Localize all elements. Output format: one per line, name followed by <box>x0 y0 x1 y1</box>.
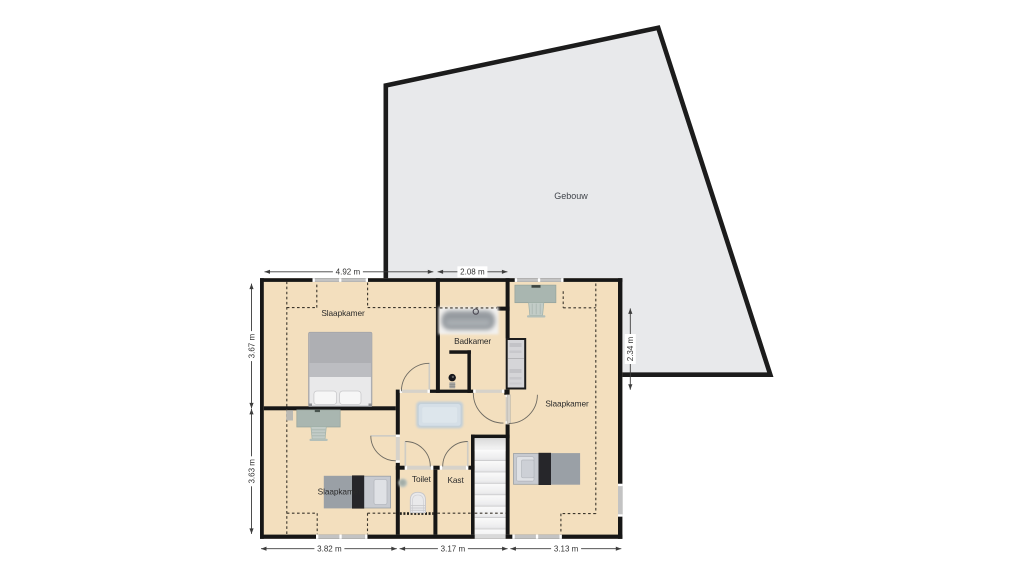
svg-text:3.67 m: 3.67 m <box>247 334 256 359</box>
svg-text:2.08 m: 2.08 m <box>460 268 485 277</box>
svg-text:Slaapkamer: Slaapkamer <box>545 398 589 408</box>
svg-text:3.63 m: 3.63 m <box>247 459 256 484</box>
svg-text:Kast: Kast <box>447 475 464 485</box>
svg-text:4.92 m: 4.92 m <box>336 268 361 277</box>
svg-text:Slaapkamer: Slaapkamer <box>321 308 365 318</box>
svg-text:3.82 m: 3.82 m <box>317 545 342 554</box>
svg-text:3.13 m: 3.13 m <box>554 545 579 554</box>
svg-text:Badkamer: Badkamer <box>454 336 491 346</box>
svg-text:3.17 m: 3.17 m <box>441 545 466 554</box>
svg-text:Slaapkamer: Slaapkamer <box>318 486 362 496</box>
svg-text:Toilet: Toilet <box>412 474 432 484</box>
svg-text:2.34 m: 2.34 m <box>626 336 635 361</box>
svg-text:Gebouw: Gebouw <box>554 191 588 201</box>
